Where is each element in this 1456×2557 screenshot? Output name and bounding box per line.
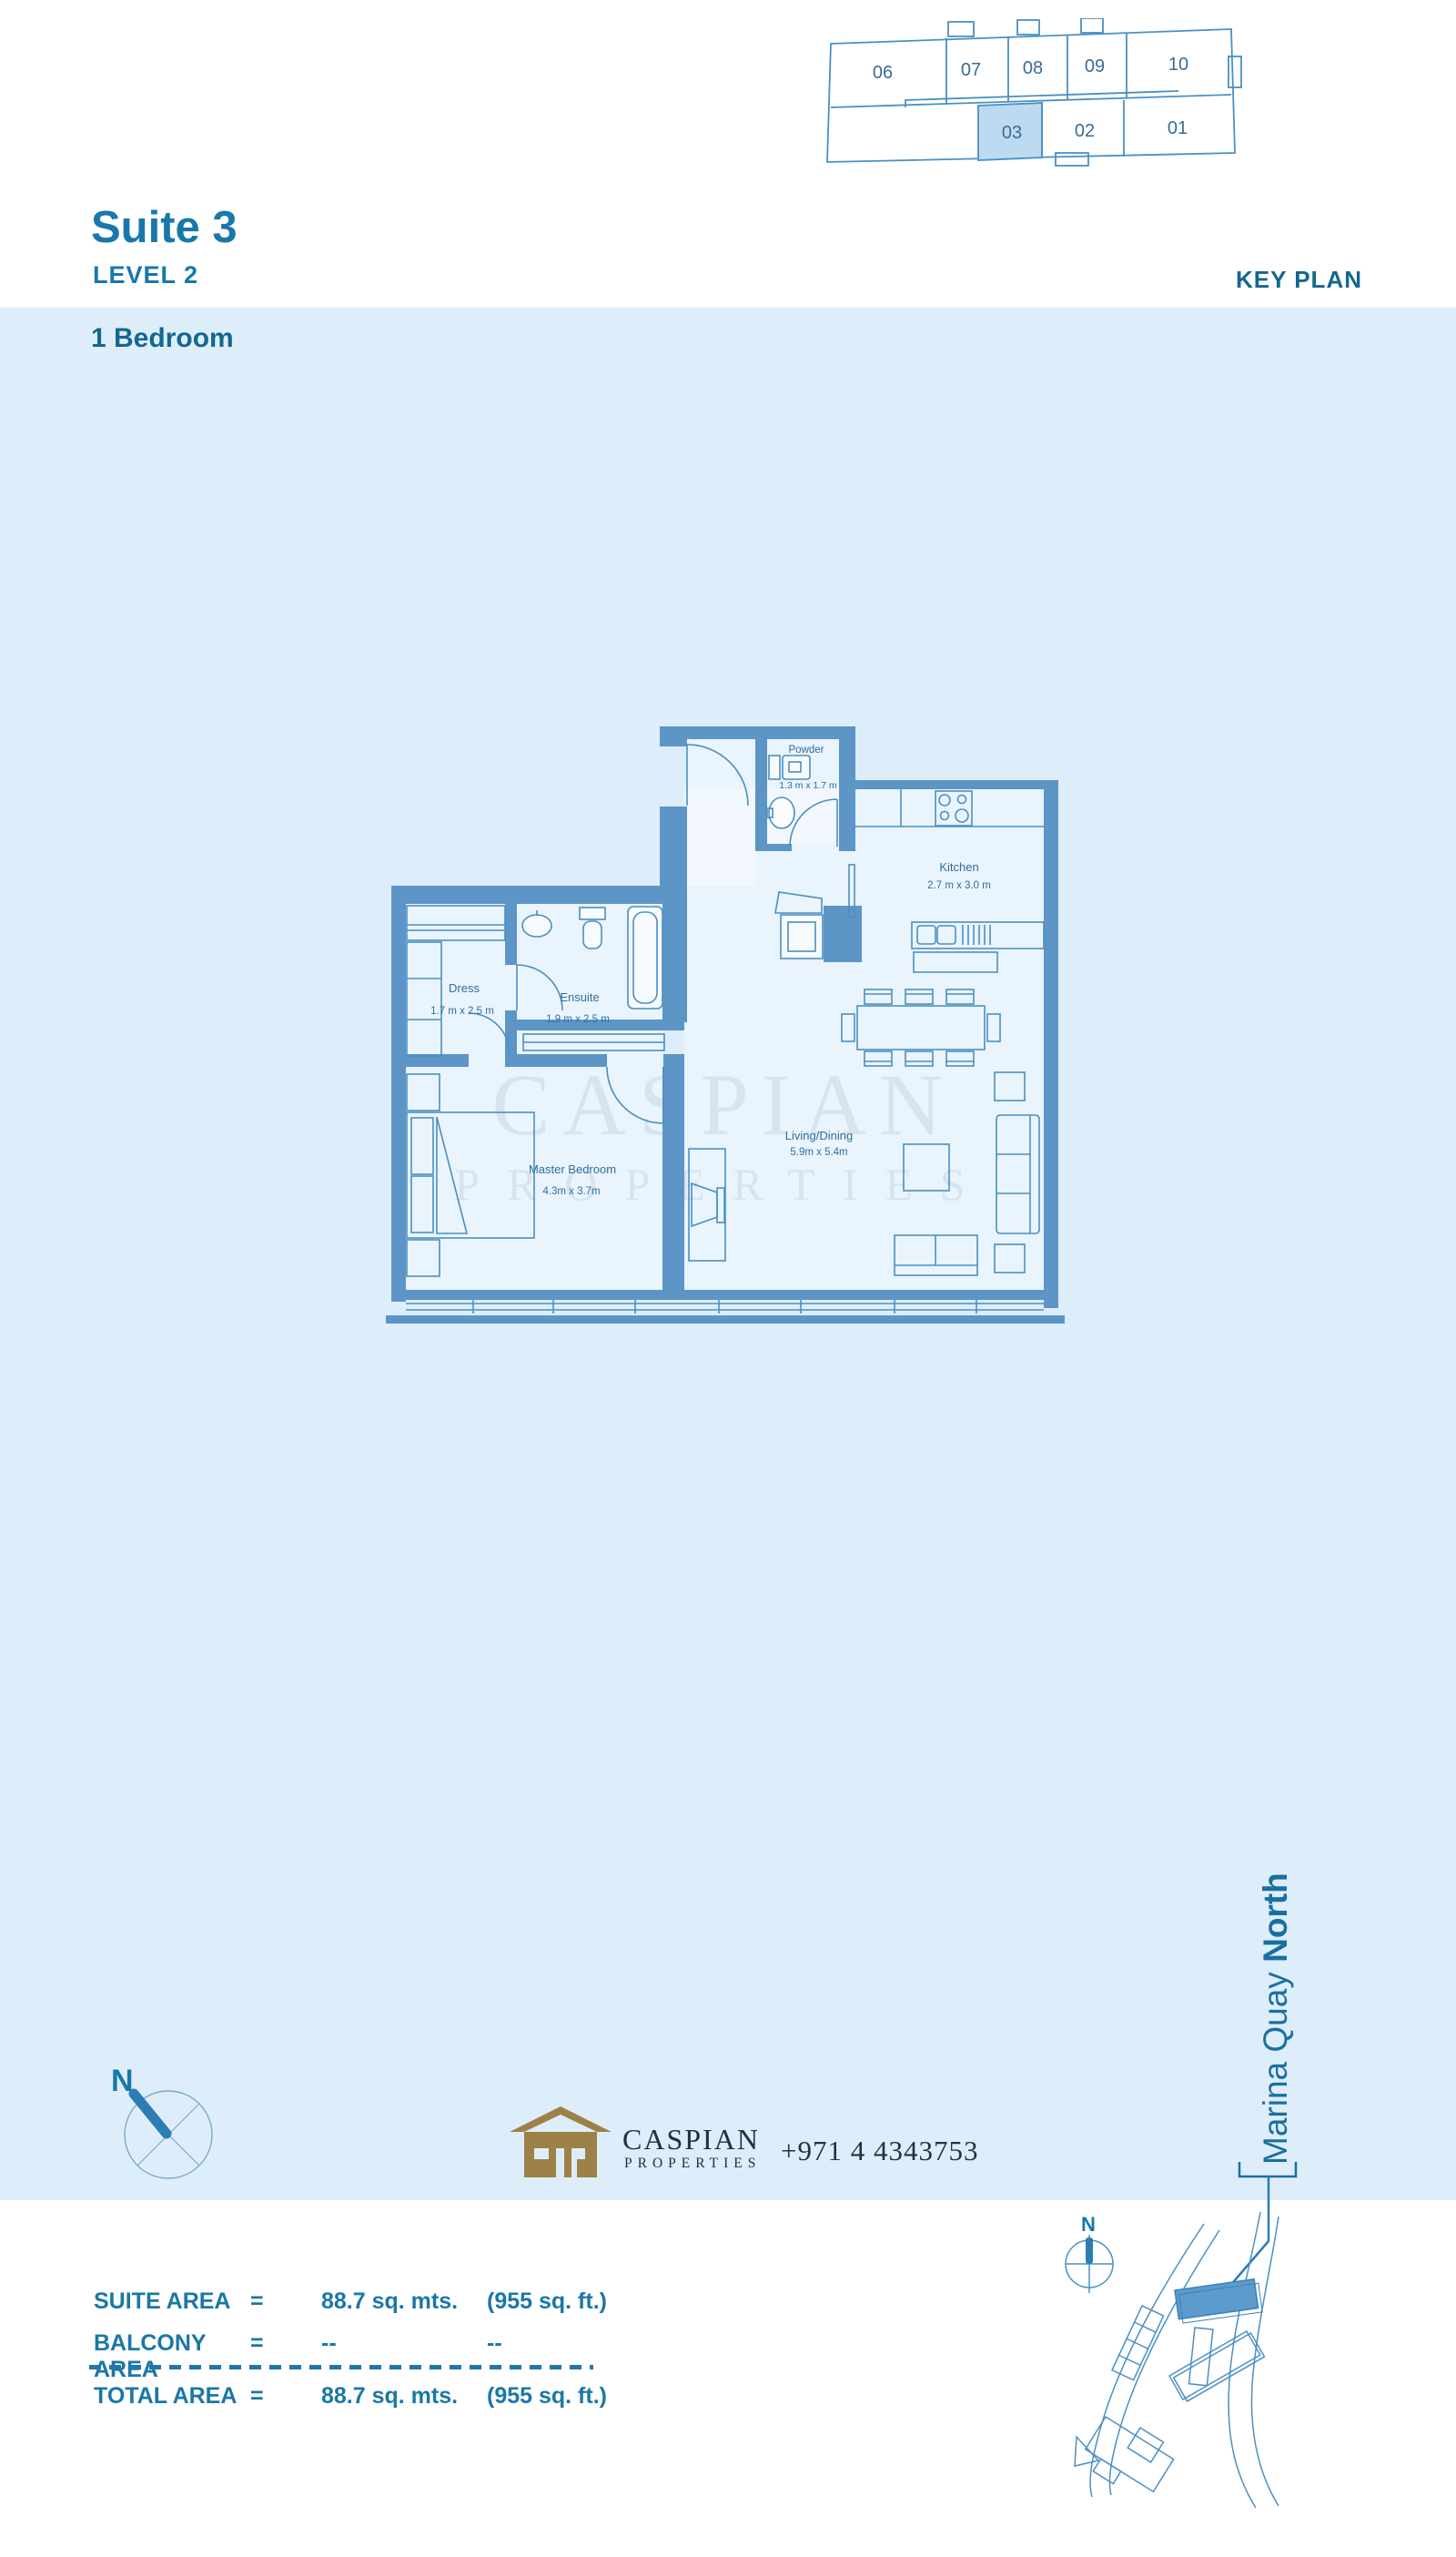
- key-plan-diagram: 06 07 08 09 10 03 02 01: [814, 18, 1242, 173]
- location-map: N: [1051, 2207, 1433, 2535]
- equals-sign: =: [250, 2288, 321, 2315]
- room-label-kitchen: Kitchen: [939, 860, 978, 874]
- room-label-powder: Powder: [789, 745, 824, 756]
- unit-number-01: 01: [1168, 118, 1188, 138]
- area-row-label: BALCONY AREA: [94, 2330, 250, 2383]
- compass-needle: [134, 2094, 167, 2134]
- compass-icon: N: [68, 2053, 223, 2198]
- key-plan-bump: [1056, 153, 1088, 166]
- map-buildings: [1077, 2306, 1264, 2504]
- toilet-icon: [580, 908, 605, 919]
- key-plan-bump: [1017, 20, 1039, 35]
- north-label: N: [111, 2064, 134, 2098]
- unit-number-03: 03: [1002, 123, 1022, 143]
- logo-tagline: PROPERTIES: [624, 2156, 761, 2172]
- suite-area-row: SUITE AREA = 88.7 sq. mts. (955 sq. ft.): [94, 2288, 607, 2315]
- key-plan-label: KEY PLAN: [1236, 266, 1362, 294]
- map-compass-icon: N: [1066, 2213, 1113, 2293]
- caspian-logo-house-icon: [510, 2105, 612, 2177]
- key-plan-bump: [948, 22, 974, 36]
- room-label-ensuite: Ensuite: [560, 990, 599, 1004]
- highlighted-building: [1175, 2278, 1262, 2323]
- area-imperial: (955 sq. ft.): [487, 2288, 607, 2315]
- equals-sign: =: [250, 2330, 321, 2383]
- area-imperial: --: [487, 2330, 502, 2383]
- phone-number: +971 4 4343753: [781, 2135, 978, 2167]
- unit-number-08: 08: [1023, 58, 1043, 78]
- area-row-label: TOTAL AREA: [94, 2383, 250, 2410]
- room-dims-living: 5.9m x 5.4m: [790, 1147, 847, 1158]
- building-name-label: Marina Quay North: [1257, 1872, 1295, 2165]
- room-label-master: Master Bedroom: [529, 1162, 616, 1176]
- unit-number-07: 07: [961, 60, 981, 80]
- area-imperial: (955 sq. ft.): [487, 2383, 607, 2410]
- area-metric: 88.7 sq. mts.: [321, 2383, 487, 2410]
- equals-sign: =: [250, 2383, 321, 2410]
- page-title: Suite 3: [91, 202, 238, 253]
- room-dims-ensuite: 1.9 m x 2.5 m: [546, 1014, 610, 1025]
- balcony-area-row: BALCONY AREA = -- --: [94, 2330, 502, 2383]
- room-label-living: Living/Dining: [785, 1129, 853, 1142]
- table-divider: [89, 2365, 593, 2369]
- area-metric: 88.7 sq. mts.: [321, 2288, 487, 2315]
- total-area-row: TOTAL AREA = 88.7 sq. mts. (955 sq. ft.): [94, 2383, 607, 2410]
- room-label-dress: Dress: [449, 981, 480, 995]
- room-dims-dress: 1.7 m x 2.5 m: [430, 1006, 494, 1017]
- unit-number-06: 06: [873, 63, 893, 83]
- brochure-page: Suite 3 LEVEL 2 KEY PLAN 1 Bedroom 06 07…: [0, 0, 1456, 2557]
- logo-name: CASPIAN: [622, 2123, 760, 2156]
- window-band: [406, 1300, 1044, 1314]
- map-roads: [1075, 2212, 1279, 2508]
- map-north-label: N: [1081, 2213, 1096, 2236]
- basin-icon: [522, 915, 551, 937]
- area-metric: --: [321, 2330, 487, 2383]
- unit-number-10: 10: [1168, 55, 1188, 75]
- room-dims-master: 4.3m x 3.7m: [542, 1186, 600, 1197]
- unit-number-02: 02: [1075, 121, 1095, 141]
- level-label: LEVEL 2: [93, 261, 198, 289]
- bedroom-type-label: 1 Bedroom: [91, 323, 234, 354]
- building-name-bold: North: [1257, 1872, 1294, 1963]
- floor-plan: Powder 1.3 m x 1.7 m Kitchen 2.7 m x 3.0…: [382, 715, 1065, 1329]
- key-plan-bump: [1081, 18, 1103, 33]
- area-row-label: SUITE AREA: [94, 2288, 250, 2315]
- building-name-regular: Marina Quay: [1257, 1963, 1294, 2165]
- unit-number-09: 09: [1085, 56, 1105, 76]
- key-plan-notch: [1228, 56, 1241, 87]
- room-dims-powder: 1.3 m x 1.7 m: [779, 780, 837, 791]
- room-dims-kitchen: 2.7 m x 3.0 m: [927, 880, 991, 891]
